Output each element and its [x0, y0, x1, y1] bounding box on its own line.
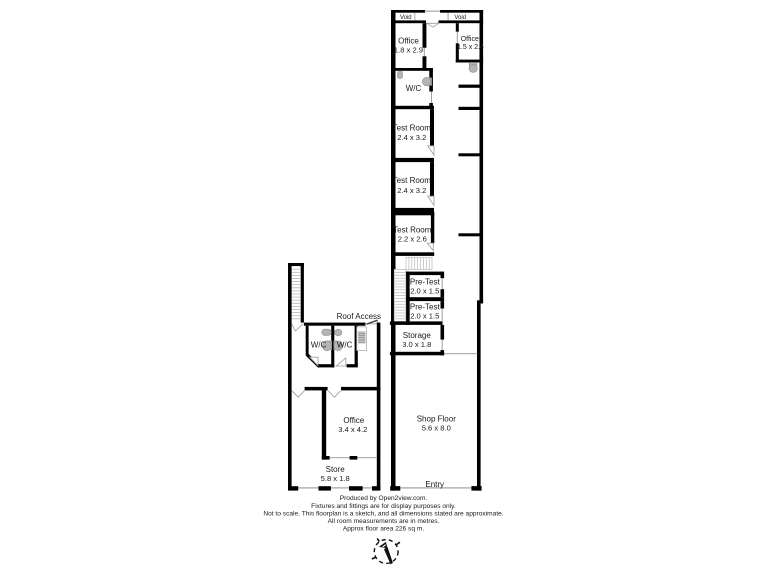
svg-text:Pre-Test: Pre-Test: [410, 277, 441, 286]
svg-text:Void: Void: [454, 15, 466, 21]
svg-text:Test Room: Test Room: [393, 226, 432, 235]
svg-text:2.0 x 1.5: 2.0 x 1.5: [410, 286, 439, 295]
svg-text:Fixtures and fittings are for: Fixtures and fittings are for display pu…: [311, 503, 456, 510]
svg-text:W/C: W/C: [311, 341, 327, 350]
svg-text:1.8 x 2.9: 1.8 x 2.9: [394, 45, 423, 54]
svg-text:Void: Void: [400, 15, 412, 21]
svg-text:2.0 x 1.5: 2.0 x 1.5: [410, 312, 439, 321]
svg-text:Storage: Storage: [403, 331, 432, 340]
svg-text:Produced by Open2view.com.: Produced by Open2view.com.: [340, 495, 428, 502]
svg-text:5.6 x 8.0: 5.6 x 8.0: [422, 423, 451, 432]
svg-text:Not to scale. This floorplan i: Not to scale. This floorplan is a sketch…: [263, 510, 503, 517]
svg-text:3.0 x 1.8: 3.0 x 1.8: [402, 340, 431, 349]
svg-text:1.5 x 2.4: 1.5 x 2.4: [457, 44, 484, 51]
svg-text:Office: Office: [398, 36, 419, 45]
svg-text:Approx floor area 226 sq m.: Approx floor area 226 sq m.: [343, 526, 425, 533]
svg-text:5.8 x 1.8: 5.8 x 1.8: [321, 474, 350, 483]
svg-text:Office: Office: [343, 416, 364, 425]
svg-text:Roof Access: Roof Access: [337, 312, 381, 321]
svg-text:2.2 x 2.6: 2.2 x 2.6: [398, 235, 427, 244]
svg-text:Entry: Entry: [425, 480, 444, 489]
svg-text:Shop Floor: Shop Floor: [417, 415, 456, 424]
svg-text:2.4 x 3.2: 2.4 x 3.2: [397, 133, 426, 142]
svg-text:All room measurements are in m: All room measurements are in metres.: [328, 518, 440, 525]
svg-text:Pre-Test: Pre-Test: [410, 303, 441, 312]
svg-text:Store: Store: [326, 465, 346, 474]
svg-text:2.4 x 3.2: 2.4 x 3.2: [397, 186, 426, 195]
svg-text:W/C: W/C: [406, 84, 422, 93]
svg-text:Test Room: Test Room: [393, 124, 432, 133]
svg-text:Test Room: Test Room: [393, 176, 432, 185]
svg-text:W/C: W/C: [337, 341, 353, 350]
svg-text:3.4 x 4.2: 3.4 x 4.2: [338, 425, 367, 434]
svg-text:Office: Office: [461, 36, 479, 43]
